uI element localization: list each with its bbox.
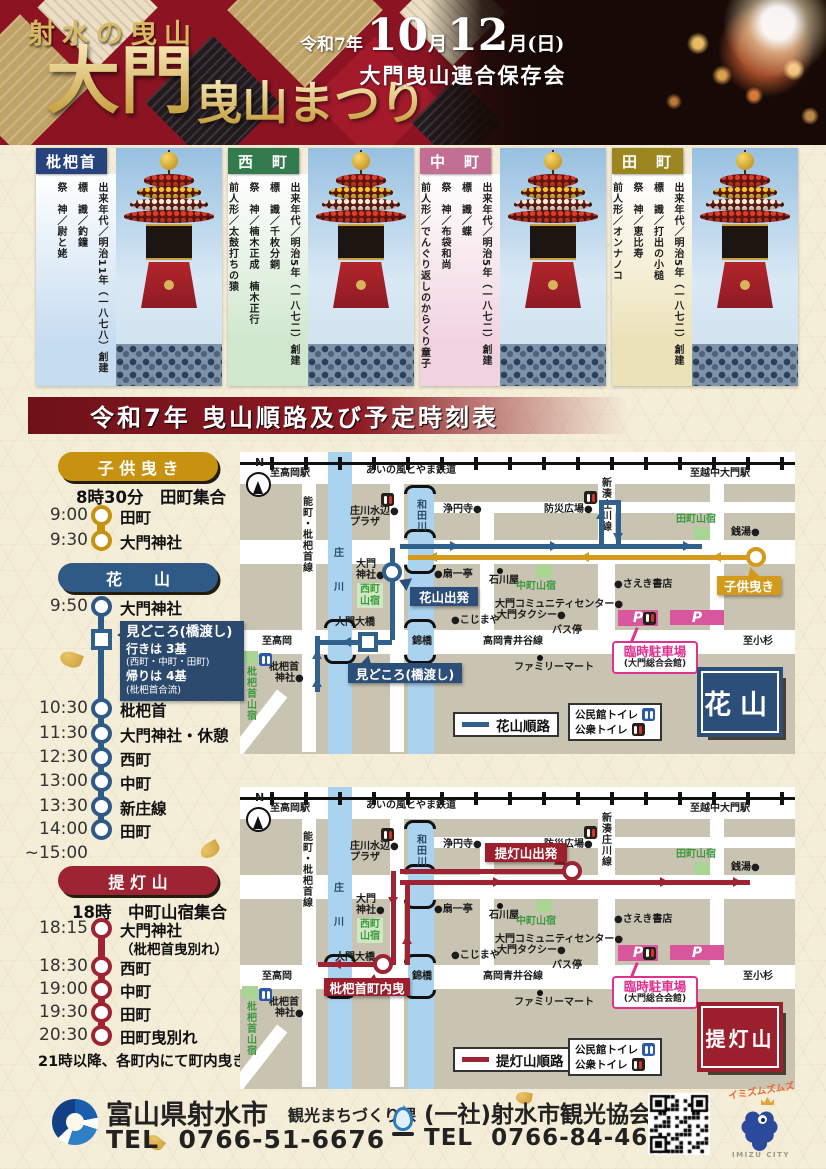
route-arrow	[596, 505, 606, 519]
map-label: 大門コミュニティセンター●	[495, 599, 623, 611]
bridge-mark	[404, 820, 436, 829]
map-label: 西町山宿	[357, 918, 383, 943]
imizu-mascot: イミズムズムズ IMIZU CITY	[714, 1085, 806, 1165]
map-label: 神社●	[356, 570, 385, 582]
map-label: 大門タクシー●	[497, 610, 566, 622]
float-card-title: 西 町	[228, 148, 299, 174]
float-photo	[500, 148, 606, 386]
map-label: 中町山宿	[516, 581, 556, 593]
toilet-icon	[381, 493, 394, 506]
yamayado-square	[536, 900, 552, 913]
parking-block: P	[670, 610, 724, 625]
callout-line: 行きは 3基	[126, 642, 238, 658]
schedule-section-title: 令和7年 曳山順路及び予定時刻表	[28, 397, 628, 434]
crowd-strip	[308, 344, 414, 386]
float-finial	[736, 152, 754, 170]
timeline-footnote: 21時以降、各町内にて町内曳き	[38, 1050, 247, 1071]
stop-place: 西町	[120, 957, 151, 979]
float-photo	[308, 148, 414, 386]
map-label: 浄円寺●	[443, 504, 482, 516]
start-label: 花山出発	[410, 587, 478, 606]
map-label: 神社●	[356, 905, 385, 917]
north-compass-icon	[246, 807, 271, 832]
poi-dot	[497, 903, 503, 909]
route-arrow	[733, 877, 747, 887]
float-skirt	[141, 262, 197, 308]
float-card: 出来年代／明治5年（一八七二）創建 標 識／千枚分銅 祭 神／楠木正成 楠木正行…	[228, 148, 414, 386]
parking-label: 臨時駐車場	[618, 980, 692, 994]
yamayado-square	[694, 527, 710, 540]
toilet-legend-row: 公民館トイレ	[575, 1042, 655, 1057]
stop-place: 枇杷首	[120, 699, 167, 721]
stop-place: 田町曳別れ	[120, 1026, 198, 1048]
map-label: 能町・枇杷首線	[300, 496, 312, 573]
float-lantern-tier	[508, 210, 598, 223]
yamayado-square	[694, 862, 710, 875]
toilet-icon	[632, 723, 645, 736]
toilet-icon	[642, 1043, 655, 1056]
float-card: 出来年代／明治11年（一八七八）創建 標 識／釣鐘 祭 神／尉と姥枇杷首	[36, 148, 222, 386]
poster-title-main: 大門	[46, 44, 194, 118]
map-label: 大門	[356, 559, 376, 571]
mascot-eye	[758, 1115, 767, 1124]
start-label: 提灯山出発	[485, 843, 567, 862]
map-label: 浄円寺●	[443, 839, 482, 851]
map-label: 至小杉	[743, 971, 773, 983]
route-legend-line	[462, 1057, 489, 1062]
footer-org2: (一社)射水市観光協会	[424, 1095, 652, 1129]
highlight-callout: 見どころ(橋渡し)行きは 3基(西町・中町・田町)帰りは 4基(枇杷首合流)	[120, 621, 244, 701]
map-label: 枇杷首	[269, 997, 299, 1009]
stop-marker	[91, 796, 112, 817]
map-label: 西町山宿	[357, 583, 383, 608]
route-segment	[391, 871, 396, 965]
highlight-marker	[91, 629, 112, 650]
stop-time: 12:30	[16, 747, 88, 767]
route-legend: 花山順路	[453, 712, 559, 737]
stop-place: 田町	[120, 1003, 151, 1025]
highlight-label: 見どころ(橋渡し)	[348, 663, 462, 683]
map-title-box: 提灯山	[701, 1006, 779, 1068]
stop-marker	[91, 596, 112, 617]
map-label: 神社●	[275, 673, 304, 685]
timeline-pill-chochin: 提 灯 山	[58, 866, 218, 895]
stop-time: 13:30	[16, 796, 88, 816]
petal-decoration	[198, 839, 222, 861]
map-label: 庄川水辺●	[350, 841, 399, 853]
map-label: ●さえき書店	[614, 579, 672, 591]
map-label: プラザ	[350, 852, 380, 864]
stop-time: 13:00	[16, 771, 88, 791]
float-finial	[160, 152, 178, 170]
date-month-unit: 月	[428, 29, 447, 56]
stop-time: 14:00	[16, 819, 88, 839]
float-skirt	[717, 262, 773, 308]
stop-marker	[91, 918, 112, 939]
route-arrow	[450, 541, 464, 551]
float-stage	[722, 224, 768, 260]
route-arrow	[312, 645, 322, 659]
route-arrow	[423, 552, 437, 562]
toilet-legend-row: 公民館トイレ	[575, 707, 655, 722]
map-label: 川	[334, 917, 344, 929]
stop-marker	[91, 771, 112, 792]
route-arrow	[337, 637, 351, 647]
timeline-pill-kodomo: 子 供 曳 き	[58, 452, 218, 481]
toilet-icon	[259, 653, 272, 666]
kanko-kyokai-logo-icon	[390, 1101, 416, 1133]
map-label: 至高岡駅	[270, 803, 310, 815]
float-skirt	[525, 262, 581, 308]
float-info-panel: 出来年代／明治11年（一八七八）創建 標 識／釣鐘 祭 神／尉と姥	[36, 174, 116, 386]
street	[710, 819, 724, 989]
map-label: 防災広場●	[544, 504, 593, 516]
map-label: ●扇一亭	[434, 569, 473, 581]
float-card-title: 枇杷首	[36, 148, 107, 174]
map-label: 田町山宿	[676, 849, 716, 861]
event-era: 令和7年	[300, 30, 363, 55]
map-label: 神社●	[275, 1008, 304, 1020]
toilet-legend-text: 公衆トイレ	[575, 722, 628, 737]
float-card: 出来年代／明治5年（一八七二）創建 標 識／打出の小槌 祭 神／恵比寿 前人形／…	[612, 148, 798, 386]
float-finial	[544, 152, 562, 170]
stop-marker	[91, 505, 112, 526]
organizer-name: 大門曳山連合保存会	[318, 60, 608, 90]
float-skirt	[333, 262, 389, 308]
poster-page: 射水の曳山 大門 曳山まつり 令和7年 10 月 12 月(日) 大門曳山連合保…	[0, 0, 826, 1169]
toilet-icon	[642, 708, 655, 721]
tel-label: TEL	[424, 1125, 473, 1151]
float-info-text: 出来年代／明治11年（一八七八）創建 標 識／釣鐘 祭 神／尉と姥	[40, 182, 111, 380]
float-info-text: 出来年代／明治5年（一八七二）創建 標 識／千枚分銅 祭 神／楠木正成 楠木正行…	[232, 182, 303, 380]
stop-marker	[91, 747, 112, 768]
map-label: 至越中大門駅	[690, 803, 750, 815]
end-time-note: ~15:00	[16, 843, 88, 863]
route-legend-line	[462, 722, 489, 727]
yamayado-square	[536, 565, 552, 578]
float-stage	[530, 224, 576, 260]
float-lantern-tier	[700, 210, 790, 223]
map-label: 高岡青井谷線	[483, 636, 543, 648]
toilet-legend-text: 公民館トイレ	[575, 707, 638, 722]
stop-time: 18:15	[16, 918, 88, 938]
float-stage	[146, 224, 192, 260]
railway-line	[240, 462, 795, 465]
route-arrow	[550, 541, 564, 551]
map-label: ●こじまや	[451, 950, 500, 962]
float-info-text: 出来年代／明治5年（一八七二）創建 標 識／打出の小槌 祭 神／恵比寿 前人形／…	[616, 182, 687, 380]
map-label: 庄	[334, 548, 344, 560]
map-label: 新湊庄川線	[599, 812, 611, 867]
float-finial	[352, 152, 370, 170]
map-label: 庄川水辺●	[350, 506, 399, 518]
float-stage	[338, 224, 384, 260]
callout-line: 帰りは 4基	[126, 669, 238, 685]
map-label: 至高岡駅	[270, 468, 310, 480]
river-shogawa	[328, 787, 352, 1089]
toilet-legend-row: 公衆トイレ	[575, 722, 655, 737]
stop-marker	[91, 723, 112, 744]
map-label: ●こじまや	[451, 615, 500, 627]
map-label: 石川屋	[489, 575, 519, 587]
parking-sublabel: (大門総合会館)	[618, 994, 692, 1004]
parking-sublabel: (大門総合会館)	[618, 659, 692, 669]
stop-marker	[91, 1025, 112, 1046]
stop-marker	[91, 530, 112, 551]
route-arrow	[707, 552, 721, 562]
map-label: 枇杷首	[269, 662, 299, 674]
imizu-city-logo-icon	[52, 1099, 98, 1145]
crowd-strip	[692, 344, 798, 386]
map-label: 大門大橋	[335, 617, 375, 629]
float-lantern-tier	[316, 210, 406, 223]
parking-block: P	[670, 945, 724, 960]
toilet-legend: 公民館トイレ公衆トイレ	[568, 1038, 662, 1076]
stop-marker	[91, 956, 112, 977]
stop-place: 田町	[120, 506, 151, 528]
map-label: 銭湯●	[731, 527, 760, 539]
stop-marker	[91, 1002, 112, 1023]
route-arrow	[683, 541, 697, 551]
date-month-number: 10	[367, 10, 428, 61]
stop-marker	[91, 698, 112, 719]
float-info-panel: 出来年代／明治5年（一八七二）創建 標 識／千枚分銅 祭 神／楠木正成 楠木正行…	[228, 174, 308, 386]
date-day-number: 12	[447, 10, 508, 61]
map-label: 高岡青井谷線	[483, 971, 543, 983]
map-label: 錦橋	[412, 636, 432, 648]
map-label: 錦橋	[412, 971, 432, 983]
float-emblem	[164, 280, 174, 290]
map-label: ファミリーマート	[514, 997, 594, 1009]
stop-time: 9:50	[16, 596, 88, 616]
parking-info-box: 臨時駐車場(大門総合会館)	[612, 641, 698, 674]
poster-footer: 富山県射水市 観光まちづくり課 TEL 0766-51-6676 (一社)射水市…	[0, 1085, 826, 1169]
map-label: ●さえき書店	[614, 914, 672, 926]
qr-code	[648, 1093, 710, 1155]
kodomo-route-label: 子供曳き	[717, 576, 781, 595]
poi-dot	[537, 655, 543, 661]
route-arrow	[575, 552, 589, 562]
map-label: 至越中大門駅	[690, 468, 750, 480]
street	[710, 484, 724, 654]
map-label: プラザ	[350, 517, 380, 529]
map-label: 庄	[334, 883, 344, 895]
footer-tel1: TEL 0766-51-6676	[106, 1125, 385, 1154]
north-compass-icon	[246, 472, 271, 497]
map-label: バス停	[552, 625, 582, 637]
timeline-pill-hanayama: 花 山	[58, 563, 218, 592]
petal-decoration	[58, 649, 84, 671]
river-shogawa	[328, 452, 352, 754]
bridge-mark	[404, 565, 436, 574]
toilet-legend-row: 公衆トイレ	[575, 1057, 655, 1072]
stop-place: 中町	[120, 980, 151, 1002]
map-label: ファミリーマート	[514, 662, 594, 674]
parking-info-box: 臨時駐車場(大門総合会館)	[612, 976, 698, 1009]
map-title-box: 花山	[701, 671, 779, 733]
map-label: 大門タクシー●	[497, 945, 566, 957]
map-label: ●扇一亭	[434, 904, 473, 916]
date-day-unit: 月(日)	[508, 29, 564, 56]
stop-time: 9:00	[16, 505, 88, 525]
route-arrow	[613, 533, 623, 547]
tel-label: TEL	[106, 1125, 159, 1154]
stop-place: 中町	[120, 772, 151, 794]
stop-place: 新庄線	[120, 797, 167, 819]
toilet-icon	[584, 491, 597, 504]
stop-marker	[91, 819, 112, 840]
map-label: 能町・枇杷首線	[300, 831, 312, 908]
poster-header: 射水の曳山 大門 曳山まつり 令和7年 10 月 12 月(日) 大門曳山連合保…	[0, 0, 826, 145]
map-label: 至高岡	[262, 636, 292, 648]
callout-line: (枇杷首合流)	[126, 685, 238, 697]
toilet-icon	[643, 612, 656, 625]
stop-place: 大門神社	[120, 597, 182, 619]
map-label: 大門	[356, 894, 376, 906]
map-label: 石川屋	[489, 910, 519, 922]
map-label: バス停	[552, 960, 582, 972]
map-label: 川	[334, 582, 344, 594]
map-label: 至高岡	[262, 971, 292, 983]
stop-time: 20:30	[16, 1025, 88, 1045]
poi-dot	[497, 568, 503, 574]
route-arrow	[660, 877, 674, 887]
yamayado-square	[242, 651, 258, 664]
float-photo	[116, 148, 222, 386]
map-label: 至小杉	[743, 636, 773, 648]
toilet-icon	[259, 988, 272, 1001]
float-card: 出来年代／明治5年（一八七二）創建 標 識／蝶 祭 神／布袋和尚 前人形／でんぐ…	[420, 148, 606, 386]
stop-place: 大門神社	[120, 531, 182, 553]
route-segment	[405, 882, 410, 965]
railway-line	[240, 797, 795, 800]
toilet-legend-text: 公民館トイレ	[575, 1042, 638, 1057]
route-legend-text: 花山順路	[496, 715, 550, 735]
poi-dot	[537, 990, 543, 996]
callout-title: 見どころ(橋渡し)	[126, 624, 238, 642]
crowd-strip	[500, 344, 606, 386]
float-info-panel: 出来年代／明治5年（一八七二）創建 標 識／蝶 祭 神／布袋和尚 前人形／でんぐ…	[420, 174, 500, 386]
float-info-text: 出来年代／明治5年（一八七二）創建 標 識／蝶 祭 神／布袋和尚 前人形／でんぐ…	[424, 182, 495, 380]
toilet-icon	[632, 1058, 645, 1071]
biwakubi-route-label: 枇杷首町内曳	[324, 978, 410, 996]
toilet-icon	[643, 947, 656, 960]
event-date: 令和7年 10 月 12 月(日)	[300, 10, 564, 61]
float-lantern-tier	[124, 210, 214, 223]
bridge-mark	[404, 619, 436, 628]
float-card-title: 田 町	[612, 148, 683, 174]
toilet-icon	[584, 826, 597, 839]
stop-place: 田町	[120, 820, 151, 842]
toilet-icon	[381, 828, 394, 841]
float-emblem	[356, 280, 366, 290]
compass-n-label: N	[255, 792, 264, 805]
route-legend: 提灯山順路	[453, 1047, 573, 1072]
stop-marker	[91, 979, 112, 1000]
map-label: あいの風とやま鉄道	[366, 465, 456, 477]
callout-line: (西町・中町・田町)	[126, 657, 238, 669]
float-photo	[692, 148, 798, 386]
map-label: 大門コミュニティセンター●	[495, 934, 623, 946]
mascot-caption: IMIZU CITY	[732, 1151, 790, 1159]
yamayado-square	[242, 986, 258, 999]
crowd-strip	[116, 344, 222, 386]
stop-time: 9:30	[16, 530, 88, 550]
stop-time: 18:30	[16, 956, 88, 976]
route-map-hanayama: N花山出発見どころ(橋渡し)子供曳きPP臨時駐車場(大門総合会館)至高岡駅あいの…	[240, 452, 795, 754]
toilet-legend: 公民館トイレ公衆トイレ	[568, 703, 662, 741]
route-arrow	[327, 959, 341, 969]
route-map-chochinyama: N提灯山出発枇杷首町内曳PP臨時駐車場(大門総合会館)至高岡駅あいの風とやま鉄道…	[240, 787, 795, 1089]
map-label: 枇杷首山宿	[244, 666, 256, 721]
float-card-title: 中 町	[420, 148, 491, 174]
float-info-panel: 出来年代／明治5年（一八七二）創建 標 識／打出の小槌 祭 神／恵比寿 前人形／…	[612, 174, 692, 386]
map-label: 田町山宿	[676, 514, 716, 526]
route-arrow	[388, 897, 398, 911]
stop-time: 19:00	[16, 979, 88, 999]
parking-label: 臨時駐車場	[618, 645, 692, 659]
route-arrow	[402, 930, 412, 944]
map-label: 和田川	[414, 834, 426, 867]
bridge-mark	[404, 485, 436, 494]
route-segment	[400, 869, 572, 874]
route-legend-text: 提灯山順路	[496, 1050, 564, 1070]
footer-tel2: TEL 0766-84-4649	[424, 1125, 682, 1151]
float-emblem	[740, 280, 750, 290]
tel1-number: 0766-51-6676	[178, 1125, 385, 1154]
map-label: 和田川	[414, 499, 426, 532]
stop-time: 11:30	[16, 723, 88, 743]
stop-time: 19:30	[16, 1002, 88, 1022]
compass-n-label: N	[255, 457, 264, 470]
mascot-crown-icon	[761, 1097, 774, 1105]
stop-note: （枇杷首曳別れ）	[120, 938, 228, 958]
stop-time: 10:30	[16, 698, 88, 718]
stop-place: 西町	[120, 748, 151, 770]
map-label: 中町山宿	[516, 916, 556, 928]
route-arrow	[312, 673, 322, 687]
float-emblem	[548, 280, 558, 290]
toilet-legend-text: 公衆トイレ	[575, 1057, 628, 1072]
stop-place: 大門神社・休憩	[120, 724, 229, 746]
route-arrow	[493, 877, 507, 887]
map-label: 枇杷首山宿	[244, 1001, 256, 1056]
map-label: 銭湯●	[731, 862, 760, 874]
map-label: あいの風とやま鉄道	[366, 800, 456, 812]
